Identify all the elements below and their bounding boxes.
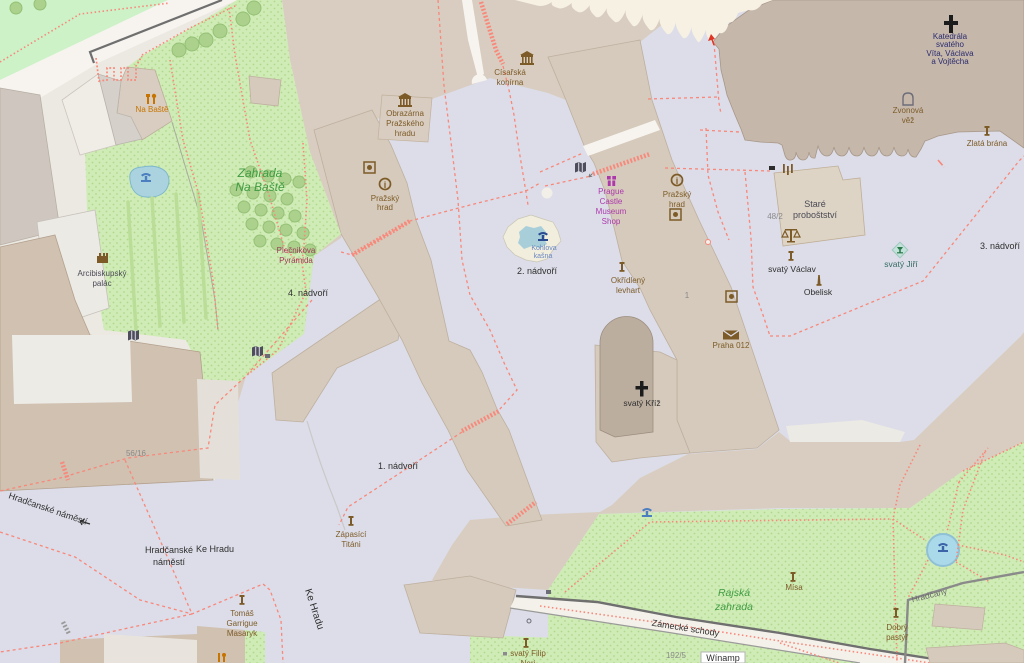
svg-text:svatý Kříž: svatý Kříž xyxy=(623,398,660,408)
svg-text:i: i xyxy=(676,176,679,186)
svg-text:48/2: 48/2 xyxy=(767,212,783,221)
svg-text:kašna: kašna xyxy=(534,253,553,260)
svg-text:Na Baště: Na Baště xyxy=(136,105,169,114)
svg-text:zahrada: zahrada xyxy=(714,601,753,613)
svg-text:Kohlova: Kohlova xyxy=(531,245,556,252)
svg-text:konírna: konírna xyxy=(497,78,524,87)
svg-text:Okřídlený: Okřídlený xyxy=(611,276,645,285)
svg-text:2. nádvoří: 2. nádvoří xyxy=(517,266,558,276)
svg-text:Garrigue: Garrigue xyxy=(226,619,258,628)
svg-text:proboštství: proboštství xyxy=(793,210,838,220)
svg-text:Shop: Shop xyxy=(602,217,621,226)
svg-text:náměstí: náměstí xyxy=(153,557,186,567)
svg-text:svatého: svatého xyxy=(936,40,965,49)
svg-text:Prague: Prague xyxy=(598,187,624,196)
svg-text:192/5: 192/5 xyxy=(666,651,687,660)
svg-text:Tomáš: Tomáš xyxy=(230,609,254,618)
svg-text:i: i xyxy=(384,180,387,190)
svg-text:56/16: 56/16 xyxy=(126,449,147,458)
svg-text:Titáni: Titáni xyxy=(341,540,360,549)
svg-text:Wínamp: Wínamp xyxy=(706,653,740,663)
svg-text:4. nádvoří: 4. nádvoří xyxy=(288,288,329,298)
svg-text:Obrazárna: Obrazárna xyxy=(386,109,424,118)
svg-text:pastýř: pastýř xyxy=(886,633,908,642)
svg-text:svatý Filip: svatý Filip xyxy=(510,649,546,658)
svg-text:Obelisk: Obelisk xyxy=(804,287,833,297)
svg-text:Pražský: Pražský xyxy=(663,190,691,199)
svg-text:Plečnikova: Plečnikova xyxy=(277,246,316,255)
svg-text:svatý Václav: svatý Václav xyxy=(768,264,816,274)
svg-text:Dobrý: Dobrý xyxy=(886,623,907,632)
svg-text:Zvonová: Zvonová xyxy=(893,106,924,115)
svg-text:Rajská: Rajská xyxy=(718,587,750,599)
svg-text:Na Baště: Na Baště xyxy=(235,180,285,194)
svg-text:Museum: Museum xyxy=(596,207,627,216)
svg-text:Pražského: Pražského xyxy=(386,119,424,128)
svg-text:Zahrada: Zahrada xyxy=(237,166,283,180)
svg-text:a Vojtěcha: a Vojtěcha xyxy=(931,57,969,66)
svg-text:Masaryk: Masaryk xyxy=(227,629,258,638)
svg-text:3. nádvoří: 3. nádvoří xyxy=(980,241,1021,251)
svg-text:levhart: levhart xyxy=(616,286,641,295)
svg-text:svatý Jiří: svatý Jiří xyxy=(884,259,918,269)
svg-text:Arcibiskupský: Arcibiskupský xyxy=(78,269,127,278)
svg-text:Zlatá brána: Zlatá brána xyxy=(967,139,1008,148)
svg-text:1. nádvoří: 1. nádvoří xyxy=(378,461,419,471)
svg-text:Praha 012: Praha 012 xyxy=(713,341,750,350)
svg-text:Castle: Castle xyxy=(600,197,623,206)
svg-text:Ke Hradu: Ke Hradu xyxy=(196,544,234,554)
svg-text:hradu: hradu xyxy=(395,129,415,138)
svg-text:Pražský: Pražský xyxy=(371,194,399,203)
svg-text:palác: palác xyxy=(92,279,111,288)
svg-text:Hradčanské: Hradčanské xyxy=(145,545,193,555)
svg-text:Pyramida: Pyramida xyxy=(279,256,313,265)
svg-text:Staré: Staré xyxy=(804,199,826,209)
svg-text:věž: věž xyxy=(902,116,914,125)
svg-text:Císařská: Císařská xyxy=(494,68,526,77)
svg-text:1: 1 xyxy=(685,291,690,300)
svg-text:hrad: hrad xyxy=(669,200,685,209)
svg-text:Mísa: Mísa xyxy=(785,583,803,592)
svg-text:hrad: hrad xyxy=(377,203,393,212)
svg-text:Zápasící: Zápasící xyxy=(336,530,367,539)
svg-text:Neri: Neri xyxy=(521,659,536,663)
